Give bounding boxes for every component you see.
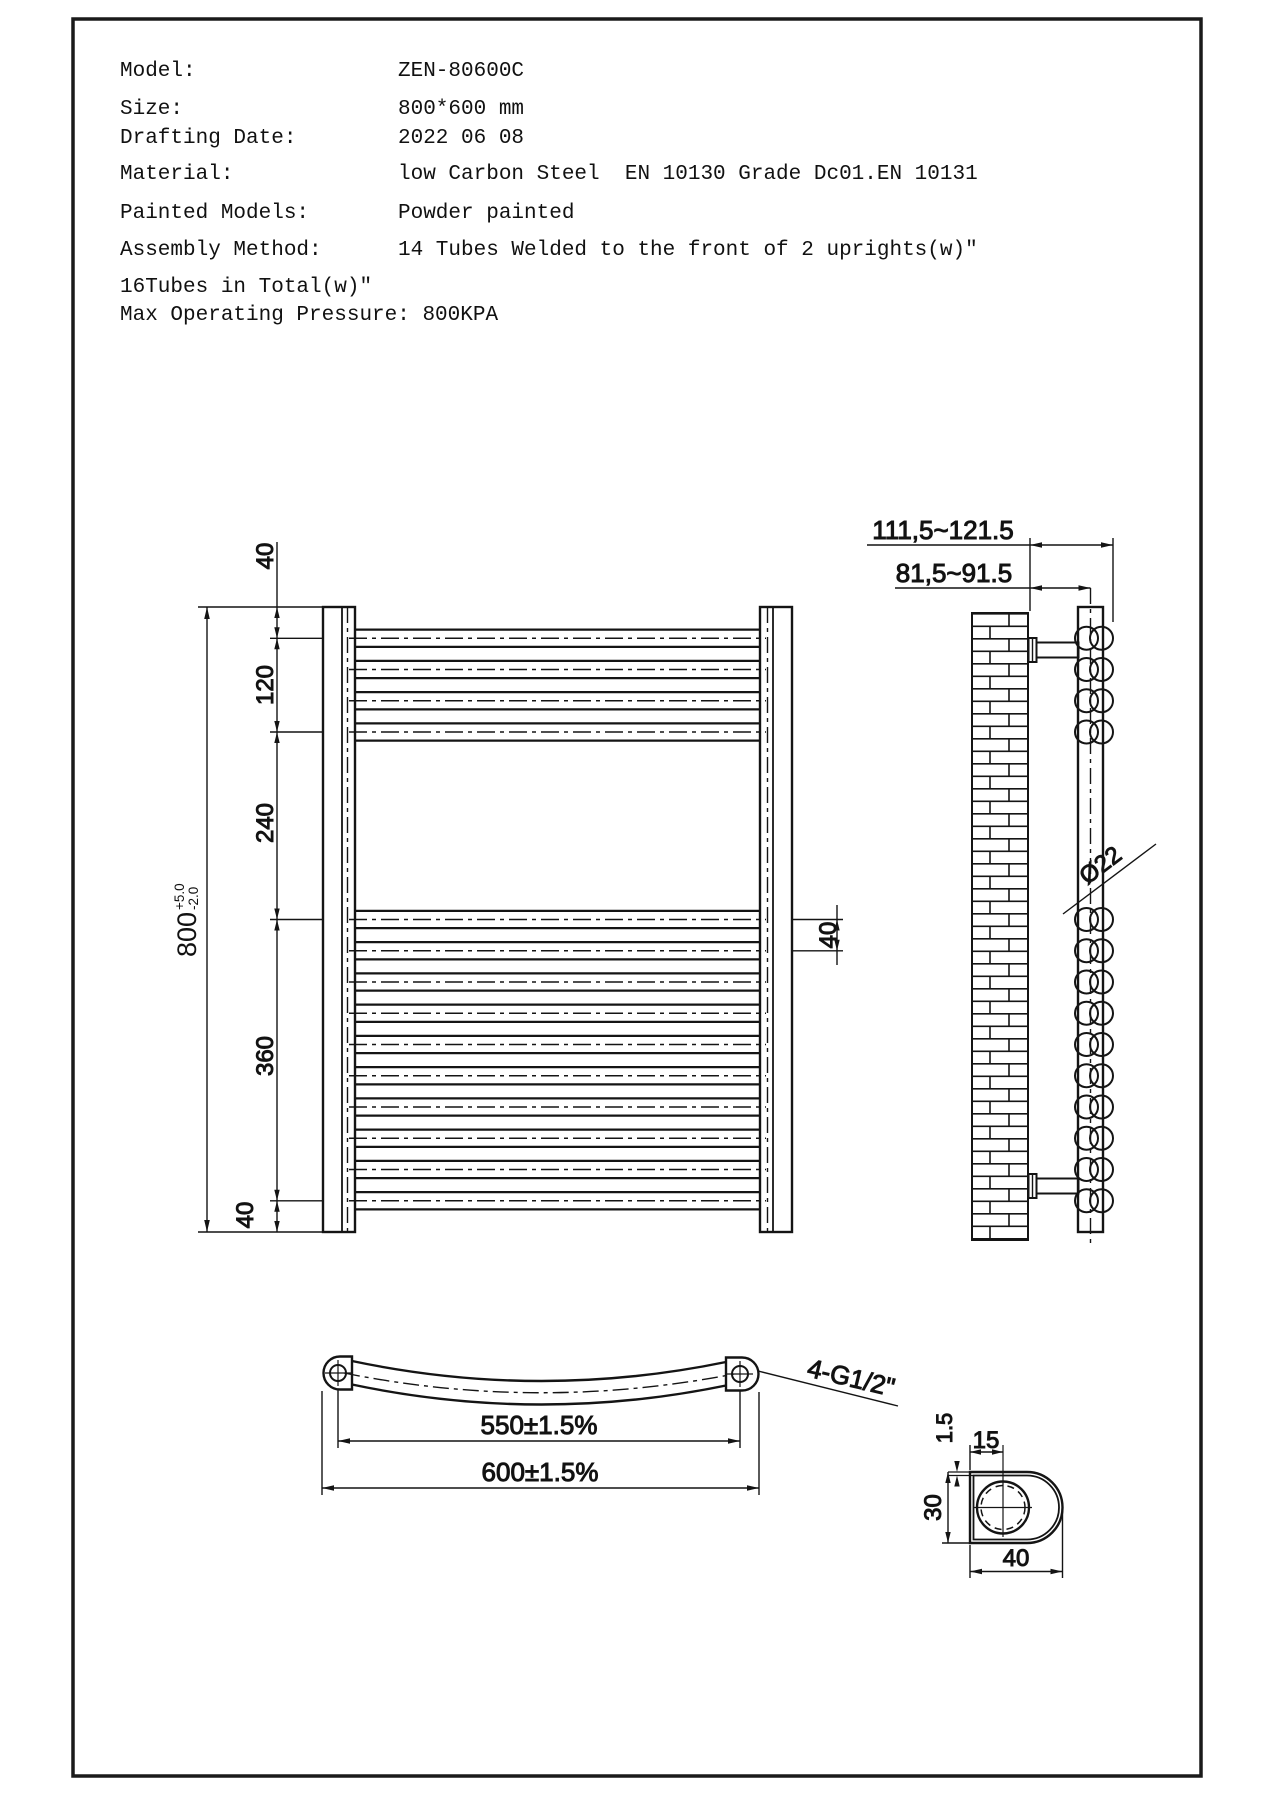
dim-top-label: 40 <box>252 543 279 570</box>
dim-overall-width-label: 600±1.5% <box>482 1457 599 1487</box>
svg-text:+5.0: +5.0 <box>172 883 187 910</box>
curved-tube-bottom-edge <box>352 1385 726 1405</box>
drawing-sheet: Model:ZEN-80600C Size:800*600 mm Draftin… <box>0 0 1273 1800</box>
technical-drawing-canvas: 800 +5.0 -2.0 40 120 240 360 40 <box>0 0 1273 1800</box>
curved-tube-top-edge <box>352 1361 726 1381</box>
dim-bottom-label: 40 <box>232 1202 259 1229</box>
dim-wall-to-center-label: 81,5~91.5 <box>896 558 1012 588</box>
svg-text:-2.0: -2.0 <box>186 887 201 910</box>
dim-profile-height-label: 30 <box>920 1494 947 1521</box>
tube-bars <box>349 630 766 1210</box>
dim-overall-height-label: 800 +5.0 -2.0 <box>172 883 202 957</box>
front-view: 800 +5.0 -2.0 40 120 240 360 40 <box>172 542 843 1232</box>
dim-tube-pitch-label: 40 <box>815 922 842 949</box>
side-view: 111,5~121.5 81,5~91.5 Ø22 <box>867 515 1156 1248</box>
dim-profile-width-label: 40 <box>1003 1545 1030 1572</box>
tube-end-circles <box>1075 627 1113 1213</box>
bottom-view: 550±1.5% 600±1.5% 4-G1/2" <box>322 1353 898 1495</box>
connection-label: 4-G1/2" <box>805 1353 898 1403</box>
right-upright <box>760 607 792 1232</box>
dim-middle-label: 240 <box>252 803 279 843</box>
dim-tube-diameter-label: Ø22 <box>1074 841 1126 890</box>
dim-hole-centers-label: 550±1.5% <box>481 1410 598 1440</box>
dim-center-offset-label: 15 <box>973 1427 1000 1454</box>
dim-lower-label: 360 <box>252 1036 279 1076</box>
dim-upper-label: 120 <box>252 665 279 705</box>
dim-wall-to-outer-label: 111,5~121.5 <box>872 515 1013 545</box>
dim-segment-chain <box>270 542 323 1232</box>
svg-text:800: 800 <box>172 912 202 957</box>
wall-section <box>972 613 1028 1240</box>
curved-tube-centerline <box>344 1373 734 1393</box>
dim-wall-thickness-label: 1.5 <box>932 1413 957 1444</box>
wall-bracket-bottom <box>1029 1174 1079 1198</box>
wall-bracket-top <box>1029 638 1079 662</box>
sheet-border <box>73 19 1201 1776</box>
detail-view: 15 1.5 30 <box>920 1413 1063 1578</box>
